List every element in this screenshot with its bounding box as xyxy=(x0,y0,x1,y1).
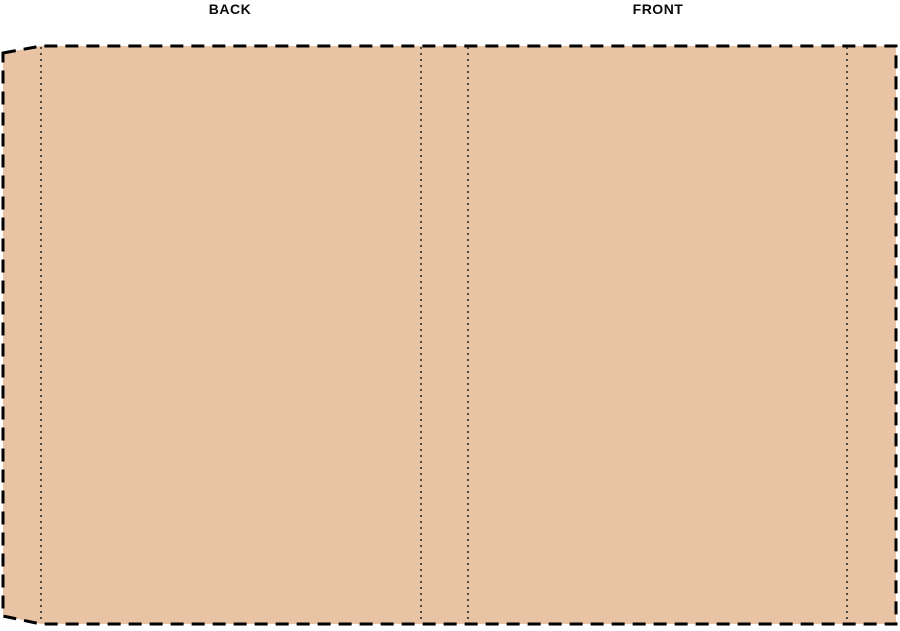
book-cover-template: BACK FRONT xyxy=(0,0,900,631)
cover-dieline-drawing xyxy=(0,0,900,631)
cover-cut-outline xyxy=(3,46,896,624)
